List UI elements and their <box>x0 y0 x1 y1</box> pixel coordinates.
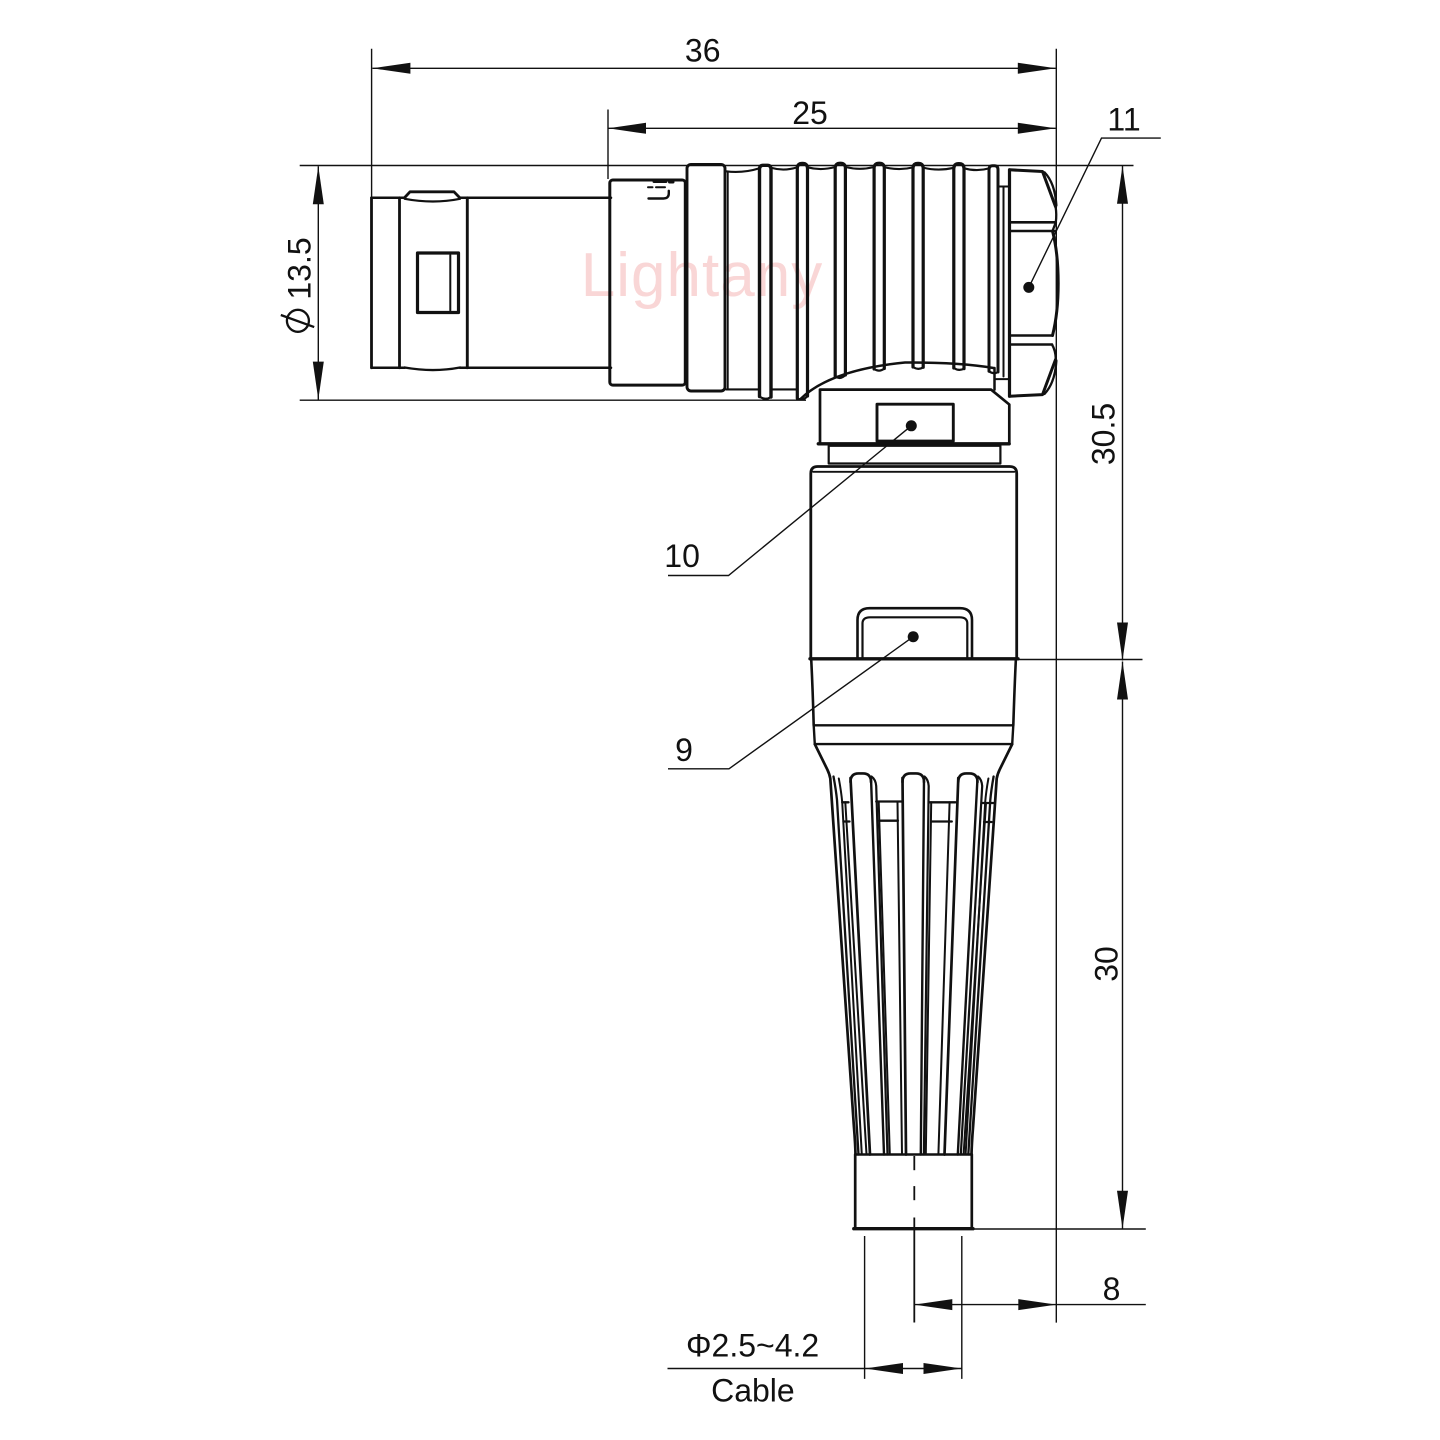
svg-text:30.5: 30.5 <box>1086 403 1122 465</box>
svg-text:11: 11 <box>1107 101 1140 137</box>
svg-text:Φ2.5~4.2: Φ2.5~4.2 <box>686 1328 819 1364</box>
svg-text:10: 10 <box>664 538 700 574</box>
svg-text:9: 9 <box>675 732 693 768</box>
svg-text:13.5: 13.5 <box>282 237 318 299</box>
svg-text:Lightany: Lightany <box>581 241 823 310</box>
svg-text:36: 36 <box>685 33 721 69</box>
svg-text:25: 25 <box>792 95 828 131</box>
svg-text:8: 8 <box>1103 1271 1121 1307</box>
svg-text:Cable: Cable <box>711 1373 795 1409</box>
svg-text:30: 30 <box>1089 946 1125 982</box>
